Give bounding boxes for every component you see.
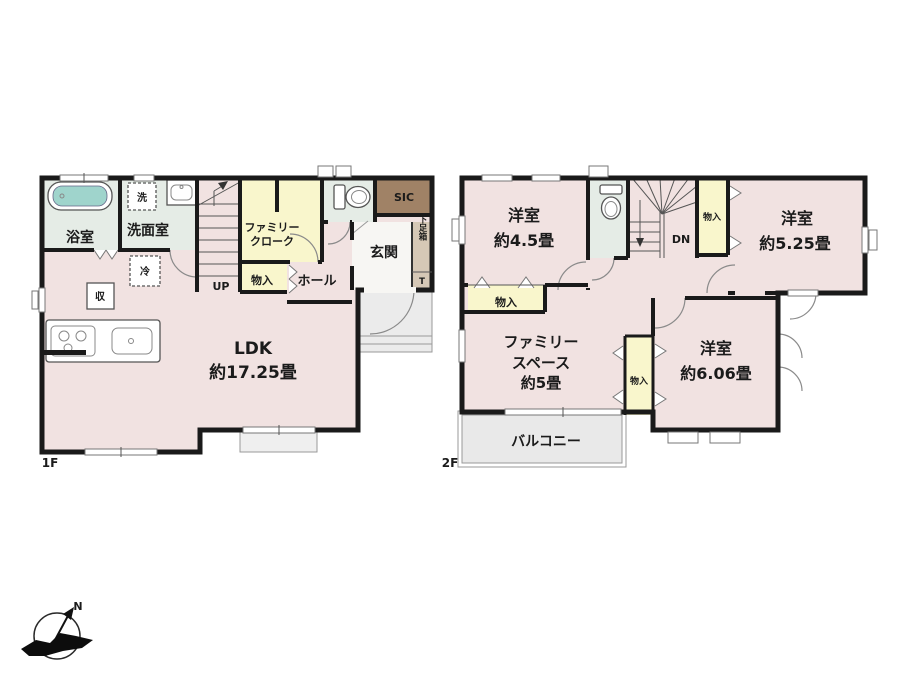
label-fridge: 冷 — [140, 265, 150, 278]
label-bedroom-small-name: 洋室 — [508, 206, 540, 225]
front-door-opening — [364, 287, 416, 293]
label-bath: 浴室 — [66, 229, 94, 246]
bathtub — [48, 182, 112, 210]
label-sic: SIC — [394, 191, 414, 204]
label-ldk-name: LDK — [234, 339, 273, 359]
toilet-1f — [334, 185, 370, 209]
floor-1f: 浴室 洗面室 洗 ファミリー クローク 物入 ホール UP 玄関 SIC 下足箱… — [32, 166, 432, 470]
label-bedroom-small-size: 約4.5畳 — [494, 231, 554, 250]
label-closet-top: 物入 — [703, 211, 721, 223]
label-balcony: バルコニー — [511, 434, 581, 450]
label-family-closet-1: ファミリー — [245, 221, 300, 234]
label-closet-mid: 物入 — [630, 375, 648, 387]
compass: N — [21, 600, 93, 659]
label-bedroom-mid-size: 約5.25畳 — [759, 234, 830, 253]
label-bedroom-mid-name: 洋室 — [781, 209, 813, 228]
toilet-2f — [600, 185, 622, 219]
label-washroom: 洗面室 — [127, 222, 169, 239]
kitchen-counter — [42, 320, 160, 362]
label-dn: DN — [672, 233, 690, 246]
label-ldk-size: 約17.25畳 — [209, 362, 297, 383]
label-bedroom-large-size: 約6.06畳 — [680, 364, 751, 383]
floorplan-canvas: 浴室 洗面室 洗 ファミリー クローク 物入 ホール UP 玄関 SIC 下足箱… — [0, 0, 900, 675]
floor-label-1f: 1F — [42, 456, 59, 470]
label-closet-left: 物入 — [495, 295, 517, 309]
room-family-closet — [240, 178, 322, 262]
label-bedroom-large-name: 洋室 — [700, 339, 732, 358]
label-shoe-box-t: T — [419, 277, 425, 287]
label-hall: ホール — [297, 274, 336, 289]
label-family-space-2: スペース — [512, 354, 570, 372]
compass-north-label: N — [73, 600, 82, 613]
label-shoe-box: 下足箱 — [417, 215, 428, 241]
label-family-closet-2: クローク — [250, 235, 294, 248]
label-family-space-3: 約5畳 — [521, 374, 561, 392]
label-family-space-1: ファミリー — [503, 333, 578, 351]
kitchen-wall-stub — [42, 350, 86, 355]
floorplan-page: 浴室 洗面室 洗 ファミリー クローク 物入 ホール UP 玄関 SIC 下足箱… — [0, 0, 900, 675]
room-closet-mid — [625, 336, 653, 415]
floor-2f: 洋室 約4.5畳 洋室 約5.25畳 洋室 約6.06畳 ファミリー スペース … — [442, 166, 877, 470]
compass-bird-silhouette — [21, 633, 93, 656]
entrance-porch — [356, 292, 432, 352]
label-entrance: 玄関 — [370, 244, 398, 261]
label-storage: 収 — [95, 291, 106, 303]
washroom-sink — [167, 180, 196, 205]
label-closet-1f: 物入 — [251, 273, 273, 287]
floor-label-2f: 2F — [442, 456, 459, 470]
label-washer: 洗 — [137, 191, 147, 204]
label-up: UP — [213, 280, 230, 293]
